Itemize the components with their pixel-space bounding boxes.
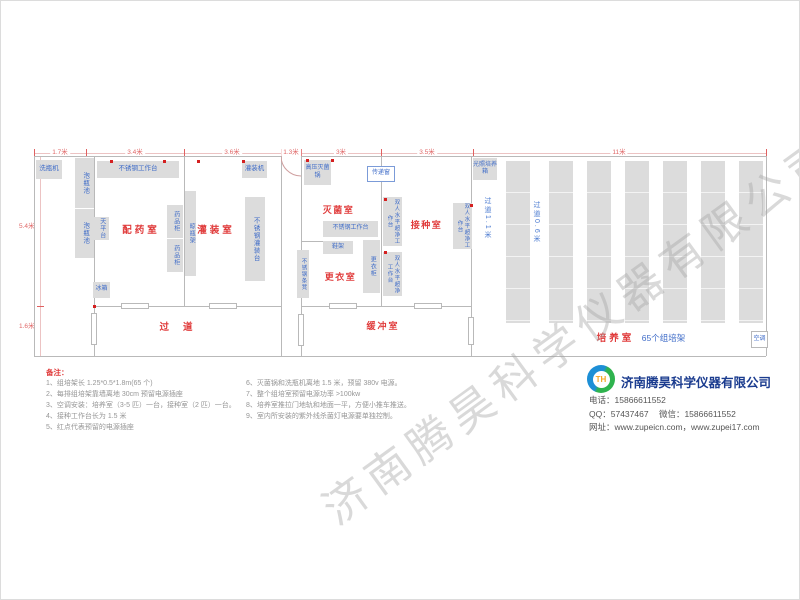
ss-worktable: 不锈钢工作台	[323, 221, 378, 237]
dim-label-1_3m: 1.3米	[281, 149, 301, 156]
note-item: 2、每排组培架靠墙离地 30cm 预留电源插座	[46, 389, 236, 400]
locker-label: 更衣柜	[368, 256, 376, 277]
dim-tick	[381, 149, 382, 156]
wall	[34, 156, 35, 356]
transfer-window: 传递窗	[367, 166, 395, 182]
dim-tick	[473, 149, 474, 156]
company-logo-text: TH	[593, 371, 610, 388]
note-item: 8、培养室推拉门地轨和地面一平，方便小推车推送。	[246, 400, 411, 411]
soak-pool: 泡瓶池	[75, 158, 94, 208]
room-label-sterilize: 灭菌室	[311, 203, 366, 216]
power-outlet-dot	[110, 160, 113, 163]
corridor-label-1-1m: 过道1.1米	[482, 197, 492, 261]
wall	[34, 156, 281, 157]
ss-worktable: 不锈钢工作台	[97, 161, 179, 178]
dim-tick	[86, 149, 87, 156]
culture-rack	[739, 161, 763, 323]
room-label-inoculation: 接种室	[399, 218, 454, 231]
light-incubator-label: 光照培养箱	[473, 162, 497, 177]
dim-label-1_7m: 1.7米	[50, 149, 70, 156]
dim-label-11m: 11米	[610, 149, 627, 156]
room-label-prep: 配药室	[111, 222, 171, 236]
room-label-corridor: 过道	[143, 319, 223, 333]
company-logo: TH	[587, 365, 615, 393]
sliding-door	[298, 314, 304, 346]
company-phone: 电话：15866611552	[589, 394, 666, 406]
room-label-changing: 更衣室	[313, 270, 368, 283]
wechat-number: 15866611552	[684, 409, 735, 419]
sliding-door	[91, 313, 97, 345]
note-item: 1、组培架长 1.25*0.5*1.8m(65 个)	[46, 378, 236, 389]
power-outlet-dot	[242, 160, 245, 163]
note-item: 5、红点代表预留的电源插座	[46, 422, 236, 433]
fridge-label: 冰箱	[95, 286, 107, 294]
wall	[34, 356, 766, 357]
dim-tick	[766, 149, 767, 156]
phone-label: 电话：	[589, 395, 615, 405]
dim-tick	[184, 149, 185, 156]
note-item: 6、灭菌锅和洗瓶机离地 1.5 米，预留 380v 电源。	[246, 378, 411, 389]
sliding-door	[209, 303, 237, 309]
culture-room-subtitle: 65个组培架	[642, 333, 685, 343]
shoe-rack: 鞋架	[323, 241, 353, 254]
notes-left-column: 备注： 1、组培架长 1.25*0.5*1.8m(65 个) 2、每排组培架靠墙…	[46, 367, 236, 433]
locker: 更衣柜	[363, 240, 380, 293]
dim-label-3m: 3米	[334, 149, 348, 156]
company-qq-wechat: QQ：57437467 微信：15866611552	[589, 408, 736, 420]
ss-filling-table-label: 不锈钢灌装台	[251, 217, 259, 262]
wechat-label: 微信：	[659, 409, 685, 419]
bottle-washer-label: 洗瓶机	[39, 165, 59, 173]
dim-label-3_6m: 3.6米	[222, 149, 242, 156]
web-label: 网址：	[589, 422, 615, 432]
power-outlet-dot	[163, 160, 166, 163]
shoe-rack-label: 鞋架	[332, 244, 344, 252]
qq-label: QQ：	[589, 409, 611, 419]
medicine-cabinet-label: 药品柜	[171, 245, 179, 266]
autoclave-label: 高压灭菌锅	[304, 165, 331, 180]
note-item: 3、空调安装：培养室（3-5 匹）一台，接种室（2 匹）一台。	[46, 400, 236, 411]
soak-pool: 泡瓶池	[75, 209, 94, 258]
fridge: 冰箱	[93, 282, 110, 298]
sliding-door	[414, 303, 442, 309]
note-item: 9、室内所安装的紫外线杀菌灯电源要单独控制。	[246, 411, 411, 422]
culture-rack	[663, 161, 687, 323]
ss-worktable-label: 不锈钢工作台	[119, 165, 158, 173]
company-name: 济南腾昊科学仪器有限公司	[621, 372, 771, 391]
dim-tick	[301, 149, 302, 156]
wall	[281, 156, 282, 356]
wall	[471, 156, 766, 157]
sliding-door	[329, 303, 357, 309]
ss-bench: 不锈钢条凳	[297, 250, 309, 298]
dimension-line-left	[40, 156, 41, 356]
dim-label-1_6m: 1.6米	[19, 323, 35, 330]
culture-rack	[625, 161, 649, 323]
culture-rack	[549, 161, 573, 323]
sliding-door	[121, 303, 149, 309]
room-label-buffer: 缓冲室	[353, 319, 413, 332]
air-conditioner-label: 空调	[753, 336, 765, 344]
qq-number: 57437467	[611, 409, 649, 419]
dim-tick	[34, 149, 35, 156]
power-outlet-dot	[197, 160, 200, 163]
medicine-cabinet: 药品柜	[167, 239, 183, 272]
power-outlet-dot	[384, 198, 387, 201]
power-outlet-dot	[331, 159, 334, 162]
power-outlet-dot	[384, 251, 387, 254]
ss-worktable-label: 不锈钢工作台	[332, 225, 368, 233]
wall	[766, 156, 767, 356]
medicine-cabinet-label: 药品柜	[171, 211, 179, 232]
wall	[301, 241, 323, 242]
culture-rack	[701, 161, 725, 323]
wall	[301, 156, 471, 157]
culture-rack	[506, 161, 530, 323]
power-outlet-dot	[306, 159, 309, 162]
transfer-window-label: 传递窗	[372, 170, 390, 178]
phone-number: 15866611552	[615, 395, 666, 405]
power-outlet-dot	[93, 305, 96, 308]
dim-label-3_4m: 3.4米	[125, 149, 145, 156]
clean-bench-label: 双人水平超净工作台	[456, 203, 470, 249]
room-label-culture: 培养室 65个组培架	[556, 328, 726, 346]
bottle-washer: 洗瓶机	[36, 160, 62, 179]
note-item: 4、接种工作台长为 1.5 米	[46, 411, 236, 422]
filling-machine: 灌装机	[242, 161, 267, 178]
notes-right-column: 6、灭菌锅和洗瓶机离地 1.5 米，预留 380v 电源。 7、整个组培室预留电…	[246, 378, 411, 422]
door-swing-arc	[281, 156, 302, 177]
balance-table: 天平台	[93, 217, 109, 240]
culture-room-title: 培养室	[597, 333, 635, 344]
clean-bench: 双人水平超净工作台	[453, 203, 472, 249]
ss-filling-table: 不锈钢灌装台	[245, 197, 265, 281]
soak-pool-label: 泡瓶池	[80, 172, 88, 195]
dim-label-3_5m: 3.5米	[417, 149, 437, 156]
light-incubator: 光照培养箱	[473, 158, 497, 180]
air-conditioner: 空调	[751, 331, 768, 348]
culture-rack	[587, 161, 611, 323]
web-urls: www.zupeicn.com，www.zupei17.com	[615, 422, 760, 432]
clean-bench: 双人水平超净工作台	[383, 252, 402, 296]
filling-machine-label: 灌装机	[245, 165, 265, 173]
company-websites: 网址：www.zupeicn.com，www.zupei17.com	[589, 421, 760, 433]
corridor-label-0-6m: 过道0.6米	[531, 201, 541, 261]
note-item: 7、整个组培室预留电源功率 >100kw	[246, 389, 411, 400]
clean-bench-label: 双人水平超净工作台	[386, 252, 400, 296]
room-label-filling: 灌装室	[186, 222, 246, 236]
dim-label-5_4m: 5.4米	[19, 223, 35, 230]
autoclave: 高压灭菌锅	[304, 160, 331, 185]
dim-tick	[37, 306, 44, 307]
soak-pool-label: 泡瓶池	[80, 222, 88, 245]
sliding-door	[468, 317, 474, 345]
notes-heading: 备注：	[46, 367, 236, 378]
wall	[301, 306, 471, 307]
clean-bench-label: 双人水平超净工作台	[386, 197, 400, 246]
balance-table-label: 天平台	[97, 218, 105, 239]
power-outlet-dot	[470, 204, 473, 207]
ss-bench-label: 不锈钢条凳	[300, 258, 307, 291]
floor-plan-canvas: 1.7米 3.4米 3.6米 1.3米 3米 3.5米 11米 5.4米 1.6…	[0, 0, 800, 600]
